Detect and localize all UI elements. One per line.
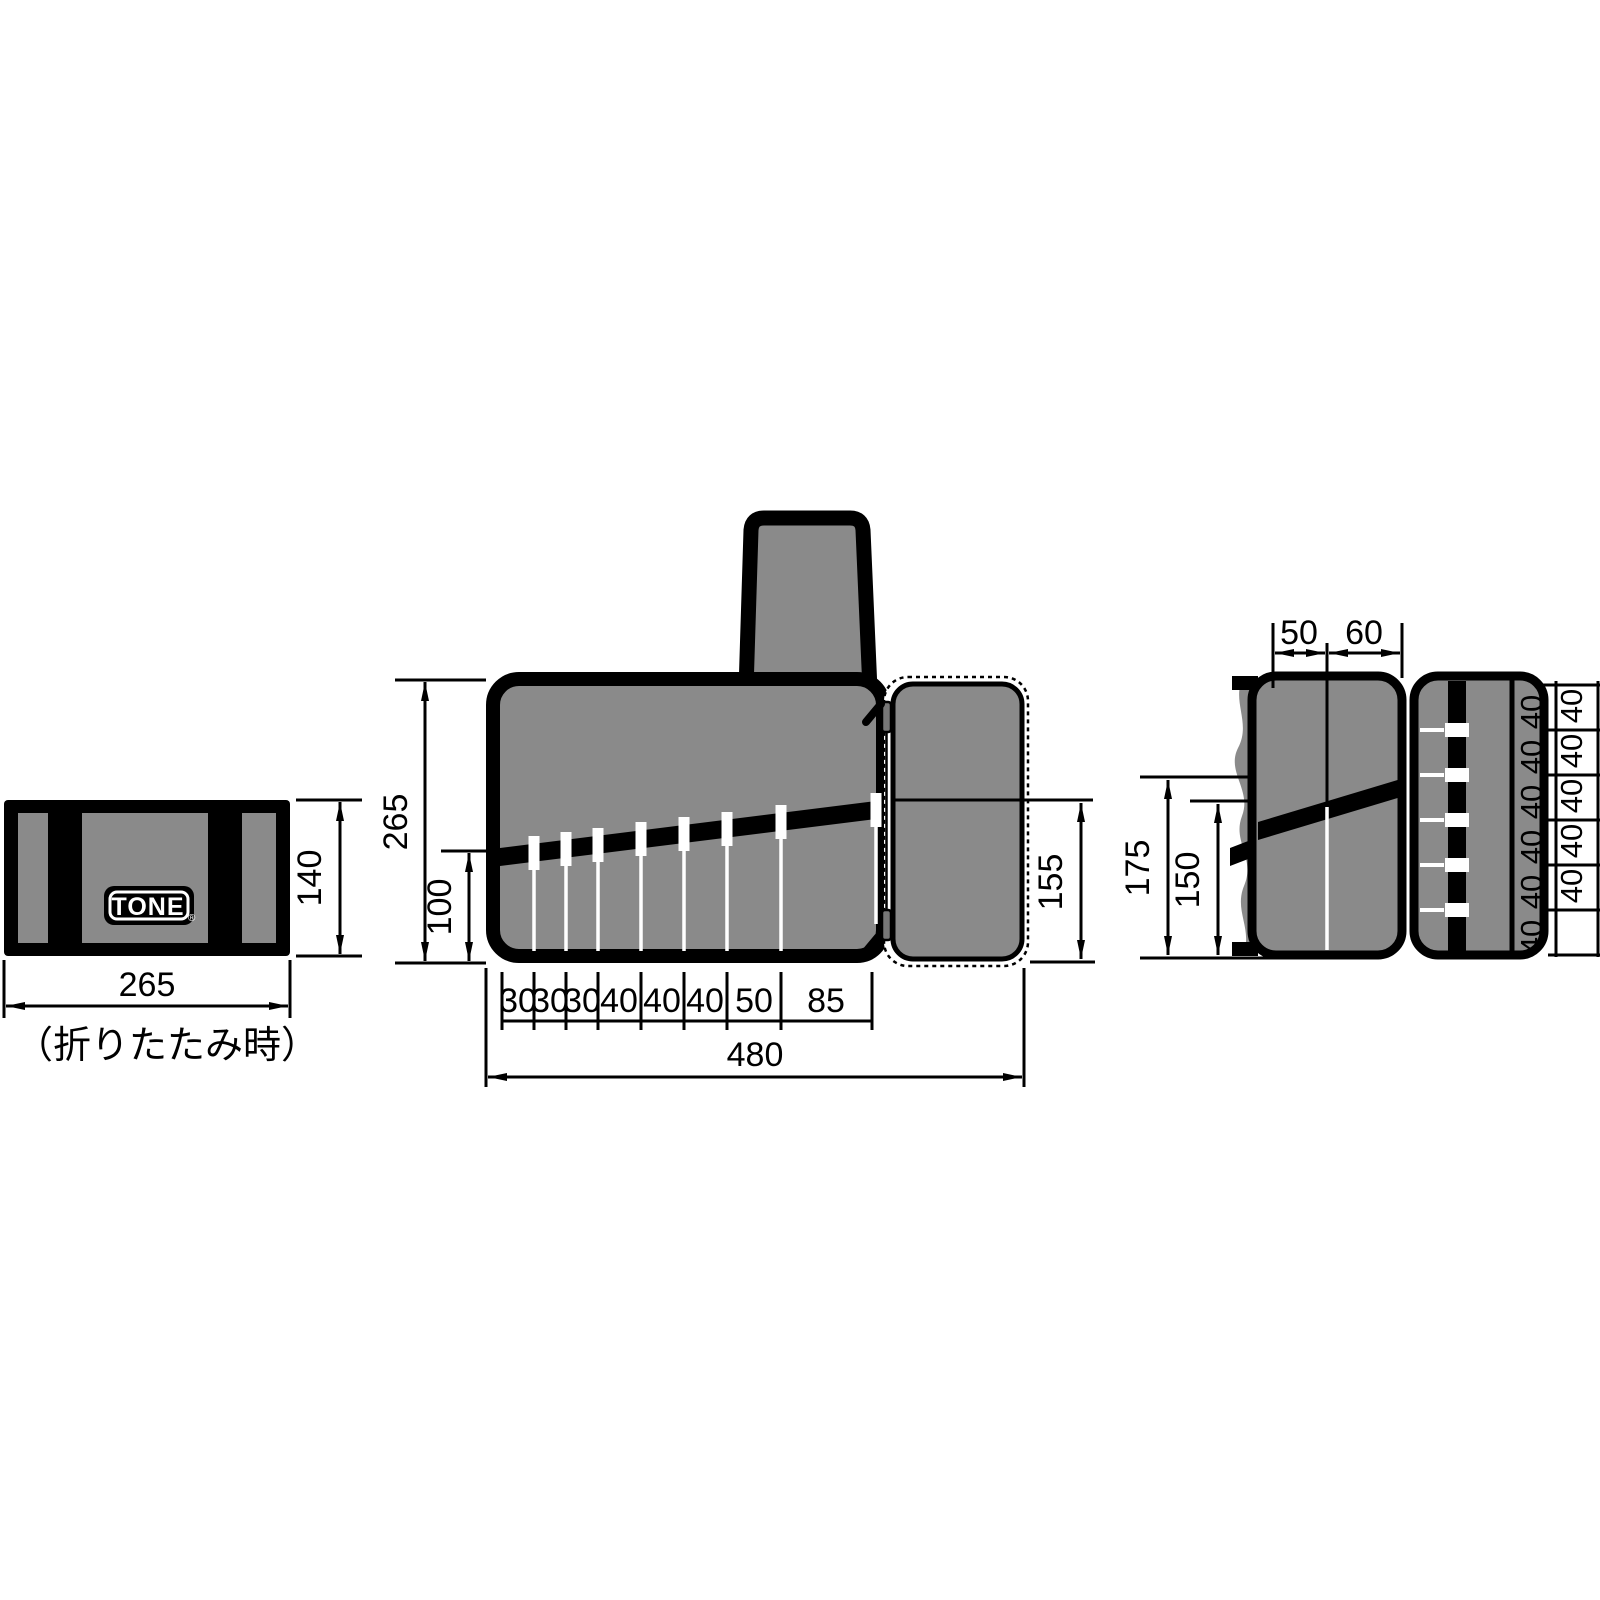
dim-label-100: 100 xyxy=(421,879,459,936)
pitch-label: 40 xyxy=(1554,869,1589,903)
pocket-width-label: 40 xyxy=(600,982,638,1020)
tool-roll-dimension-drawing: TONE ® 140 265 （折りたたみ時） xyxy=(0,0,1600,1600)
pitch-label: 40 xyxy=(1514,920,1549,954)
tool-clip xyxy=(561,832,572,866)
tool-clip xyxy=(776,805,787,839)
pitch-label: 40 xyxy=(1514,740,1549,774)
pitch-label: 40 xyxy=(1514,695,1549,729)
tool-clip xyxy=(529,836,540,870)
registered-mark: ® xyxy=(188,913,196,924)
pitch-label: 40 xyxy=(1554,689,1589,723)
tool-clip xyxy=(1445,723,1469,737)
pitch-label: 40 xyxy=(1554,734,1589,768)
pocket-width-label: 85 xyxy=(807,982,845,1020)
dim-label-155: 155 xyxy=(1032,854,1070,911)
pitch-label: 40 xyxy=(1554,779,1589,813)
pocket-width-label: 50 xyxy=(735,982,773,1020)
tool-clip xyxy=(722,812,733,846)
folded-caption: （折りたたみ時） xyxy=(15,1025,319,1067)
pitch-label: 40 xyxy=(1514,830,1549,864)
tool-clip xyxy=(679,817,690,851)
dim-label-60: 60 xyxy=(1345,614,1383,652)
tone-logo-text: TONE xyxy=(112,893,185,921)
dim-label-50: 50 xyxy=(1280,614,1318,652)
folded-panel-left xyxy=(18,813,48,943)
pocket-width-label: 40 xyxy=(686,982,724,1020)
tool-clip xyxy=(593,828,604,862)
handle-flap xyxy=(746,518,870,690)
dim-label-265-folded: 265 xyxy=(119,966,176,1004)
tool-clip xyxy=(1445,813,1469,827)
tone-logo: TONE ® xyxy=(104,886,196,925)
technical-drawing-page: TONE ® 140 265 （折りたたみ時） xyxy=(0,0,1600,1600)
folded-panel-right xyxy=(242,813,276,943)
tool-clip xyxy=(636,822,647,856)
dim-label-265-front: 265 xyxy=(377,794,415,851)
pocket-width-label: 40 xyxy=(643,982,681,1020)
pitch-label: 40 xyxy=(1514,785,1549,819)
dim-label-140: 140 xyxy=(291,850,329,907)
tool-clip xyxy=(1445,768,1469,782)
pocket-width-label: 30 xyxy=(563,982,601,1020)
dim-label-150: 150 xyxy=(1169,852,1207,909)
flap-panel-body xyxy=(893,684,1022,959)
dim-label-480: 480 xyxy=(727,1036,784,1074)
pitch-label: 40 xyxy=(1514,875,1549,909)
dim-label-175: 175 xyxy=(1119,840,1157,897)
zipper-slider-bottom xyxy=(882,910,891,940)
tool-clip xyxy=(1445,903,1469,917)
tool-clip xyxy=(1445,858,1469,872)
pitch-label: 40 xyxy=(1554,824,1589,858)
